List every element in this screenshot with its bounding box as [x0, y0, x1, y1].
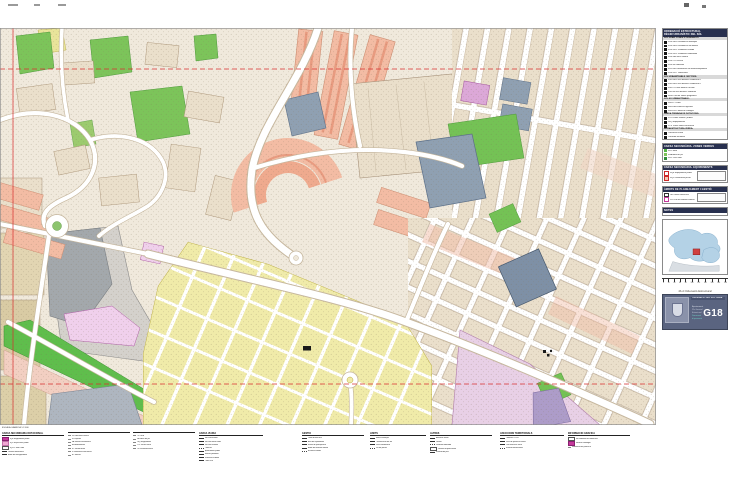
- legend-symbol: [500, 448, 505, 449]
- bottom-legend-column: INFORMACIÓ GRÀFICA Illa cadastral de ref…: [568, 432, 630, 449]
- tick-label: 0: [663, 282, 664, 284]
- legend-symbol: [68, 451, 71, 452]
- legend-symbol: [133, 448, 136, 449]
- legend-code-list: [697, 171, 726, 181]
- column-header: XARXA VIÀRIA: [199, 432, 263, 436]
- legend-item: PRI Pla de reforma interior: [664, 197, 696, 202]
- legend-item-label: ZUR-RU1 Unifamiliar aïllada: [668, 49, 694, 51]
- legend-item: Servitud aeronàutica: [500, 447, 564, 450]
- legend-item-label: PEQ Equipaments: [668, 121, 685, 123]
- bottom-legend-column: AFECCIONS TERRITORIALS Carretera CV-35Zo…: [500, 432, 564, 450]
- column-header: GESTIÓ: [302, 432, 364, 436]
- scale-tick: 160: [711, 279, 714, 284]
- legend-item-label: ZND-TR Nou desenv. terciari: [668, 87, 695, 89]
- legend-item-label: Actuació aïllada: [308, 450, 321, 452]
- tick-label: 60: [679, 282, 681, 284]
- legend-item-label: Servitud aeronàutica: [506, 447, 523, 449]
- legend-item-label: Corredor territorial: [668, 136, 685, 138]
- legend-swatch: [664, 83, 667, 86]
- legend-symbol: [370, 444, 375, 445]
- legend-symbol: [568, 447, 571, 448]
- column-header: LÍMITS: [370, 432, 426, 436]
- legend-group-list: ZUR-RE1 Residencial eixampleZUR-RE2 Resi…: [663, 40, 727, 75]
- legend-item-label: Viari de vianants: [205, 444, 219, 446]
- legend-item-label: Camí rural: [205, 460, 214, 462]
- legend-item-label: IS Infraestructura-servei: [72, 451, 92, 453]
- legend-item: Corredor territorial: [663, 135, 727, 139]
- bottom-legend-column: LÍMITS Terme municipalClassificació del …: [370, 432, 426, 450]
- registration-mark: [34, 4, 40, 6]
- legend-item-label: Illa cadastral de referència: [576, 438, 598, 440]
- tick-label: 160: [711, 282, 714, 284]
- scale-bar: 020406080100120140160180200: [662, 278, 728, 287]
- legend-item: Numeració de parcel·la: [568, 446, 630, 449]
- legend-item-label: Zona de protecció viària: [506, 441, 526, 443]
- legend-item-label: Viari de trànsit rodat: [205, 441, 222, 443]
- scale-tick: 140: [704, 279, 707, 284]
- tick-label: 20: [668, 282, 670, 284]
- legend-item-label: PCV Xarxa viària estructural: [668, 125, 694, 127]
- legend-item-label: PRI Pla de reforma interior: [670, 199, 695, 201]
- scale-tick: 80: [685, 279, 687, 284]
- legend-panel-notes: NOTES: [662, 207, 728, 216]
- legend-item-label: ZUR-RU2 Unifamiliar adossada: [668, 53, 697, 55]
- legend-item-label: SNU-PE Protecció ecològica: [668, 110, 694, 112]
- legend-panel-green: XARXA SECUNDÀRIA. ZONES VERDES SVJ Jardí…: [662, 143, 728, 161]
- legend-item-label: Carril bici: [205, 447, 213, 449]
- legend-symbol: [68, 439, 71, 440]
- legend-symbol: [2, 446, 9, 450]
- legend-item-label: ED Educatiu-cultural: [72, 435, 89, 437]
- legend-symbol: [133, 439, 136, 440]
- legend-item-label: Full de plànol: [376, 447, 387, 449]
- bottom-legend-column: PJL JardíPAJ Àrea de jocPEQ EquipamentPC…: [133, 432, 195, 450]
- legend-symbol: [68, 445, 71, 446]
- legend-swatch: [664, 60, 667, 63]
- legend-item: SQD Dotacional privat: [664, 176, 696, 181]
- legend-symbol: [500, 444, 505, 445]
- legend-item-label: Servitud de pas: [436, 451, 449, 453]
- legend-item-label: SQE Equipament públic: [10, 438, 30, 440]
- legend-symbol: [302, 441, 307, 442]
- legend-item-label: Viari estructural: [205, 437, 218, 439]
- tick-label: 40: [673, 282, 675, 284]
- legend-symbol: [199, 460, 204, 461]
- legend-swatch: [664, 45, 667, 48]
- legend-item-label: MC Mercat: [72, 454, 81, 456]
- notes-list: [663, 213, 727, 215]
- sheet-location-marker: [693, 249, 700, 255]
- legend-swatch: [664, 197, 669, 202]
- tick-label: 80: [685, 282, 687, 284]
- legend-symbol: [568, 441, 575, 445]
- legend-symbol: [430, 447, 437, 451]
- scale-tick: 0: [663, 279, 664, 284]
- legend-item-label: Àmbit de reforma interior: [308, 447, 329, 449]
- legend-swatch: [664, 157, 667, 160]
- tick-label: 180: [717, 282, 720, 284]
- legend-symbol: [68, 442, 71, 443]
- plan-sheet: ORDENACIÓ ESTRUCTURAL RÈGIM URBANÍSTIC D…: [0, 0, 730, 500]
- legend-item-label: ZND-IN Nou desenv. industrial: [668, 91, 696, 93]
- legend-item-label: PCV Xarxa viària: [137, 444, 151, 446]
- legend-symbol: [199, 448, 204, 449]
- legend-swatch: [664, 121, 667, 124]
- scale-tick: 60: [679, 279, 681, 284]
- scale-tick: 100: [690, 279, 693, 284]
- legend-symbol: [302, 448, 307, 449]
- legend-item-label: ZUD-RE Residencial en desenvolupament: [668, 68, 707, 70]
- sheet-code: G18: [703, 308, 725, 319]
- column-header: XARXA SECUNDÀRIA DOTACIONAL: [2, 432, 64, 436]
- legend-header: ORDENACIÓ ESTRUCTURAL RÈGIM URBANÍSTIC D…: [663, 29, 727, 37]
- legend-symbol: [430, 438, 435, 439]
- legend-group-list: SQE Equipament públicSQD Dotacional priv…: [664, 171, 696, 181]
- legend-item-label: ZUR-RE2 Residencial illa oberta: [668, 45, 698, 47]
- legend-swatch: [664, 176, 669, 181]
- legend-group-list: ZND-RE1 Nou desenv. residencial 1ZND-RE2…: [663, 79, 727, 98]
- legend-item-label: SQV-J Jardí urbà: [10, 447, 25, 449]
- legend-item: MC Mercat: [68, 454, 130, 457]
- legend-item: SVP Parc urbà: [663, 157, 727, 161]
- legend-item: Full de plànol: [370, 447, 426, 450]
- legend-symbol: [2, 451, 7, 452]
- legend-swatch: [664, 91, 667, 94]
- tick-label: 100: [690, 282, 693, 284]
- legend-symbol: [302, 444, 307, 445]
- legend-item-label: SQE Equipament públic: [670, 172, 692, 174]
- parcel-dot-texture: [0, 28, 656, 425]
- legend-item-label: Element catalogat: [576, 442, 591, 444]
- bottom-legend-column: XARXA SECUNDÀRIA DOTACIONAL SQE Equipame…: [2, 432, 64, 457]
- legend-symbol: [133, 442, 136, 443]
- bottom-legend: ESCALA GRÀFICA 1:2.000 XARXA SECUNDÀRIA …: [2, 427, 652, 497]
- legend-item-label: Terme municipal: [376, 437, 390, 439]
- legend-item-label: Travessia urbana: [205, 457, 220, 459]
- scale-tick: 20: [668, 279, 670, 284]
- registration-mark: [684, 3, 689, 7]
- legend-symbol: [199, 438, 204, 439]
- legend-item-label: Unitat d'execució: [308, 437, 322, 439]
- legend-item-label: Sector de planejament: [308, 444, 327, 446]
- legend-item-label: Carretera CV-35: [506, 437, 520, 439]
- legend-panel-management: ÀMBITS DE PLANEJAMENT I GESTIÓ UE Unitat…: [662, 186, 728, 204]
- legend-item-label: PAJ Àrea de joc: [137, 438, 150, 440]
- legend-swatch: [664, 102, 667, 105]
- title-block: ORDENACIÓ DEL SÒL URBÀ Ajuntament Pla Ge…: [662, 294, 728, 330]
- registration-mark: [702, 5, 706, 8]
- legend-symbol: [500, 438, 505, 439]
- scale-tick: 200: [724, 279, 727, 284]
- legend-item-label: Rasant: [436, 441, 442, 443]
- legend-item-label: Aparcament públic: [205, 450, 221, 452]
- tick-label: 200: [724, 282, 727, 284]
- legend-item-label: Alineació oficial: [436, 437, 449, 439]
- legend-sidebar: ORDENACIÓ ESTRUCTURAL RÈGIM URBANÍSTIC D…: [662, 28, 728, 330]
- legend-symbol: [68, 455, 71, 456]
- bottom-legend-column: GESTIÓ Unitat d'execucióÀrea de repartim…: [302, 432, 364, 453]
- legend-symbol: [199, 441, 204, 442]
- legend-group-list: Connector fluvialCorredor territorial: [663, 131, 727, 139]
- legend-item: Actuació aïllada: [302, 450, 364, 453]
- legend-panel-structural: ORDENACIÓ ESTRUCTURAL RÈGIM URBANÍSTIC D…: [662, 28, 728, 140]
- legend-symbol: [430, 441, 435, 442]
- legend-item-label: PEQ Equipament: [137, 441, 152, 443]
- column-header: ALTRES: [430, 432, 492, 436]
- legend-item-label: SNU-C Comú: [668, 102, 681, 104]
- legend-swatch: [664, 48, 667, 51]
- legend-group-list: UE Unitat d'execucióPRI Pla de reforma i…: [664, 193, 696, 203]
- legend-symbol: [133, 445, 136, 446]
- legend-item-label: UE Unitat d'execució: [670, 194, 689, 196]
- legend-swatch: [664, 153, 667, 156]
- legend-item-label: Itinerari peatonal: [205, 453, 219, 455]
- legend-symbol: [370, 438, 375, 439]
- legend-item: Camí rural: [199, 459, 263, 462]
- column-header: [68, 432, 130, 433]
- inset-map-svg: [665, 222, 725, 272]
- legend-swatch: [664, 132, 667, 135]
- legend-swatch: [664, 56, 667, 59]
- legend-symbol: [370, 441, 375, 442]
- legend-item-label: Línia elèctrica aèria: [506, 444, 522, 446]
- bottom-legend-column: ALTRES Alineació oficialRasantFondària e…: [430, 432, 492, 454]
- legend-swatch: [664, 64, 667, 67]
- urban-plan-map: [0, 28, 656, 425]
- location-inset-map: [662, 219, 728, 275]
- legend-item-label: SQD Dotacional privat: [670, 177, 691, 179]
- legend-item-label: ZND-RE1 Nou desenv. residencial 1: [668, 79, 701, 81]
- legend-item-label: Classificació del sòl: [376, 441, 393, 443]
- legend-symbol: [370, 448, 375, 449]
- legend-swatch: [664, 149, 667, 152]
- map-canvas: [0, 28, 656, 425]
- column-header: [133, 432, 195, 433]
- legend-item-label: Connector fluvial: [668, 132, 683, 134]
- legend-item: PID Infraestructures: [133, 447, 195, 450]
- legend-symbol: [2, 454, 7, 455]
- legend-symbol: [68, 448, 71, 449]
- legend-item-label: AD Administratiu: [72, 444, 86, 446]
- legend-group-list: PVJ Zones verdes i jardinsPEQ Equipament…: [663, 116, 727, 128]
- legend-item-label: Àmbit de reequipament: [8, 454, 28, 456]
- legend-item-label: SVA Àrea de joc: [668, 154, 683, 156]
- registration-mark: [8, 4, 18, 6]
- legend-swatch: [664, 52, 667, 55]
- legend-symbol: [430, 444, 435, 445]
- legend-item-label: SA Sanitari-assistencial: [72, 441, 92, 443]
- legend-item-label: SVJ Jardí: [668, 150, 677, 152]
- legend-item: Àmbit de reequipament: [2, 453, 64, 456]
- legend-symbol: [199, 457, 204, 458]
- scale-tick: 120: [697, 279, 700, 284]
- legend-item-label: SQV Espai lliure públic: [10, 442, 29, 444]
- scale-note: ESCALA GRÀFICA 1:2.000: [2, 427, 29, 429]
- legend-symbol: [500, 441, 505, 442]
- legend-swatch: [664, 79, 667, 82]
- column-header: INFORMACIÓ GRÀFICA: [568, 432, 630, 436]
- legend-item-label: ZUR-NH Nucli històric: [668, 56, 688, 58]
- legend-item-label: ZUR-IN Industrial: [668, 64, 684, 66]
- legend-item-label: PJL Jardí: [137, 435, 145, 437]
- legend-symbol: [199, 444, 204, 445]
- legend-swatch: [664, 106, 667, 109]
- legend-group-list: SNU-C ComúSNU-PA Protecció agrícolaSNU-P…: [663, 101, 727, 113]
- bottom-legend-column: ED Educatiu-culturalTD EsportiuSA Sanita…: [68, 432, 130, 457]
- legend-item-label: SZND Sector sense programar: [668, 95, 697, 97]
- registration-mark: [58, 4, 66, 6]
- tick-label: 120: [697, 282, 700, 284]
- legend-code-list: [697, 193, 726, 203]
- legend-item-label: SVP Parc urbà: [668, 157, 682, 159]
- scale-tick: 40: [673, 279, 675, 284]
- legend-item-label: Numeració de parcel·la: [572, 446, 592, 448]
- legend-item-label: Fondària edificable: [436, 444, 452, 446]
- legend-swatch: [664, 117, 667, 120]
- legend-item-label: Zona d'ordenació: [376, 444, 391, 446]
- bottom-legend-column: XARXA VIÀRIA Viari estructuralViari de t…: [199, 432, 263, 463]
- legend-item-label: Àrea de repartiment: [308, 441, 325, 443]
- tick-label: 140: [704, 282, 707, 284]
- legend-item-label: PVJ Zones verdes i jardins: [668, 117, 693, 119]
- legend-item-label: Reserva dotacional: [8, 451, 24, 453]
- legend-symbol: [133, 435, 136, 436]
- legend-swatch: [664, 41, 667, 44]
- column-header: AFECCIONS TERRITORIALS: [500, 432, 564, 436]
- legend-swatch: [664, 68, 667, 71]
- legend-symbol: [302, 451, 307, 452]
- legend-item-label: ZUR-TR Terciari: [668, 60, 683, 62]
- legend-item-label: ZUR-RE1 Residencial eixample: [668, 41, 697, 43]
- legend-symbol: [68, 435, 71, 436]
- legend-item-label: PID Infraestructures: [137, 448, 154, 450]
- legend-item-label: ZUR-DOT Dotacional: [668, 72, 688, 74]
- legend-item-label: ZND-RE2 Nou desenv. residencial 2: [668, 83, 701, 85]
- scale-tick: 180: [717, 279, 720, 284]
- legend-swatch: [664, 87, 667, 90]
- municipal-crest-icon: [665, 297, 689, 323]
- legend-symbol: [302, 438, 307, 439]
- legend-swatch: [664, 72, 667, 75]
- legend-panel-equipment: XARXA SECUNDÀRIA. EQUIPAMENTS SQE Equipa…: [662, 165, 728, 183]
- legend-item-label: SC Sociocultural: [72, 448, 86, 450]
- legend-symbol: [199, 451, 204, 452]
- legend-item-label: SNU-PA Protecció agrícola: [668, 106, 693, 108]
- legend-symbol: [199, 454, 204, 455]
- sheet-series-note: 4b.d Ordenació Estructural: [662, 289, 728, 293]
- legend-item-label: TD Esportiu: [72, 438, 82, 440]
- legend-swatch: [664, 136, 667, 139]
- legend-group-list: SVJ JardíSVA Àrea de jocSVP Parc urbà: [663, 149, 727, 161]
- titleblock-version: Document d'aprovació: [692, 315, 703, 321]
- legend-item-label: Reserva d'aparcament: [438, 448, 457, 450]
- legend-symbol: [430, 452, 435, 453]
- legend-item: Servitud de pas: [430, 451, 492, 454]
